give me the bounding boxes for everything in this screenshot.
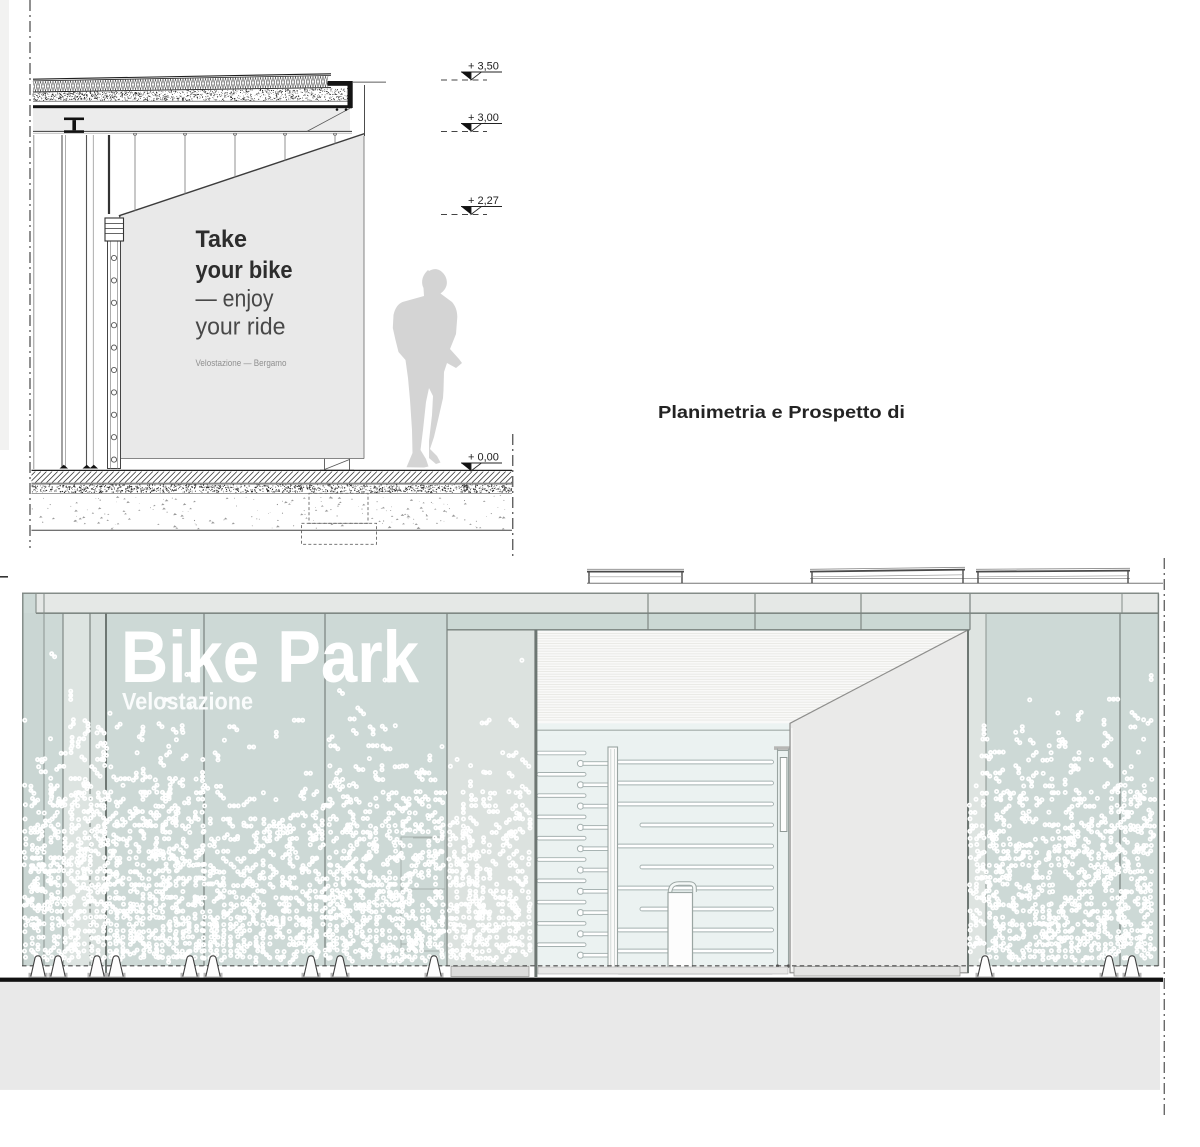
svg-text:+ 2,27: + 2,27 [468, 195, 499, 207]
svg-text:— enjoy: — enjoy [196, 286, 274, 313]
svg-text:Velostazione — Bergamo: Velostazione — Bergamo [196, 358, 287, 369]
svg-text:Planimetria e Prospetto di: Planimetria e Prospetto di [658, 402, 905, 422]
svg-text:+ 3,50: + 3,50 [468, 61, 499, 73]
svg-text:+ 0,00: + 0,00 [468, 452, 499, 464]
svg-text:your bike: your bike [196, 257, 293, 284]
svg-text:Take: Take [196, 226, 248, 253]
svg-text:your ride: your ride [196, 314, 286, 341]
svg-text:+ 3,00: + 3,00 [468, 112, 499, 124]
